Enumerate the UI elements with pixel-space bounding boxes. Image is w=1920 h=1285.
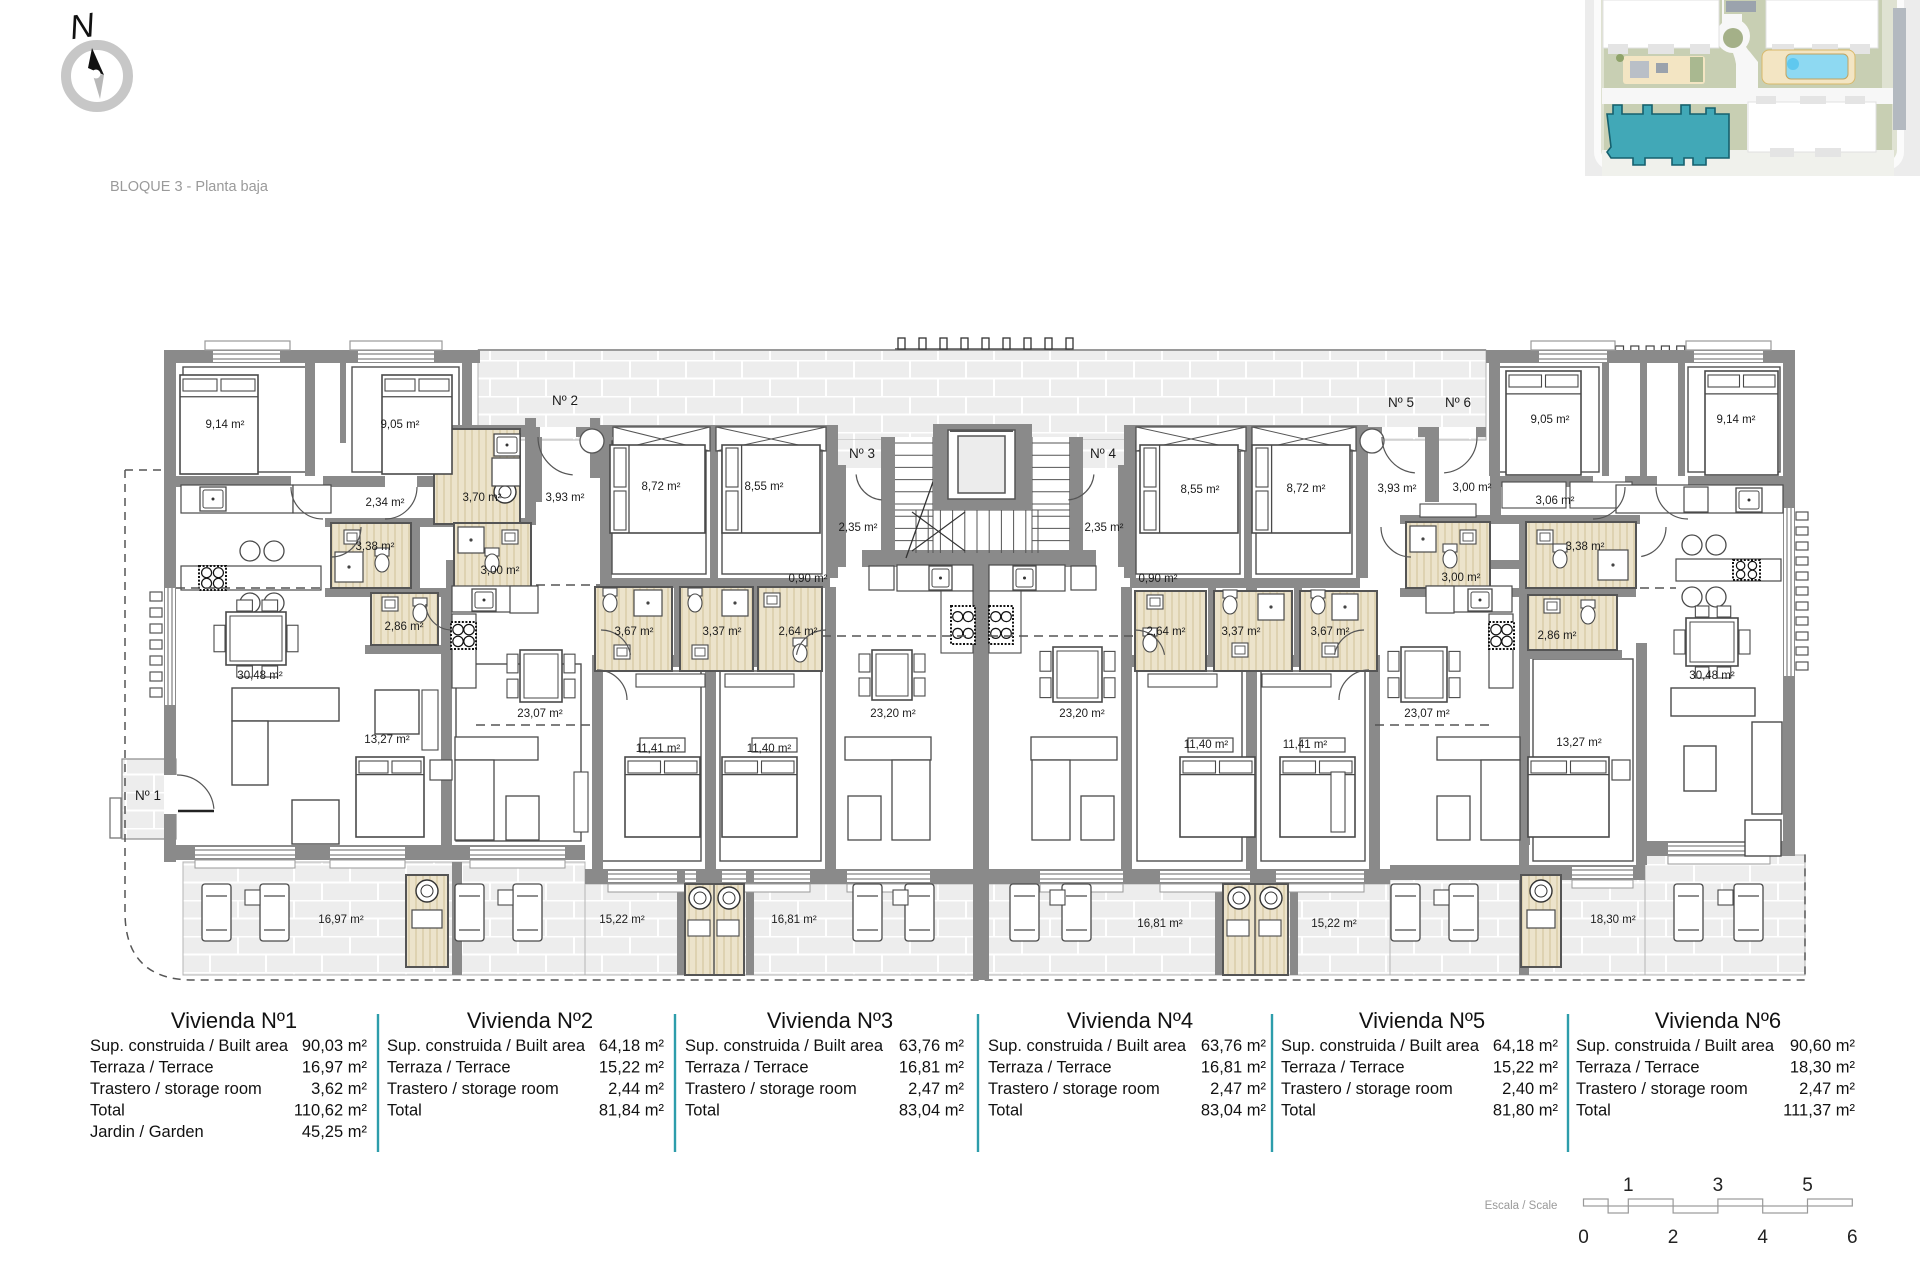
svg-text:Terraza / Terrace: Terraza / Terrace (387, 1059, 511, 1077)
svg-text:Sup. construida / Built area: Sup. construida / Built area (90, 1037, 289, 1055)
svg-text:9,05 m²: 9,05 m² (381, 419, 420, 431)
svg-text:0: 0 (1578, 1227, 1589, 1248)
svg-text:15,22 m²: 15,22 m² (599, 914, 645, 926)
svg-text:3,00 m²: 3,00 m² (1453, 482, 1492, 494)
svg-text:Nº 1: Nº 1 (135, 788, 161, 803)
svg-text:3,06 m²: 3,06 m² (1536, 495, 1575, 507)
svg-text:2,64 m²: 2,64 m² (779, 626, 818, 638)
svg-text:Nº 3: Nº 3 (849, 446, 875, 461)
svg-text:Trastero / storage room: Trastero / storage room (685, 1080, 857, 1098)
svg-text:4: 4 (1757, 1227, 1768, 1248)
svg-text:11,41 m²: 11,41 m² (1283, 739, 1328, 751)
svg-text:5: 5 (1802, 1175, 1813, 1196)
svg-text:81,84 m²: 81,84 m² (599, 1102, 665, 1120)
svg-text:111,37 m²: 111,37 m² (1783, 1102, 1855, 1120)
svg-text:Sup. construida / Built area: Sup. construida / Built area (988, 1037, 1187, 1055)
svg-text:3,38 m²: 3,38 m² (1566, 541, 1605, 553)
svg-text:90,60 m²: 90,60 m² (1790, 1037, 1856, 1055)
svg-text:6: 6 (1847, 1227, 1858, 1248)
svg-text:3,00 m²: 3,00 m² (481, 565, 520, 577)
svg-text:Total: Total (1576, 1102, 1611, 1120)
svg-text:Vivienda Nº1: Vivienda Nº1 (171, 1008, 297, 1033)
svg-text:2,40 m²: 2,40 m² (1502, 1080, 1558, 1098)
svg-text:3,37 m²: 3,37 m² (1222, 626, 1261, 638)
svg-text:2,86 m²: 2,86 m² (385, 621, 424, 633)
svg-text:16,97 m²: 16,97 m² (302, 1059, 368, 1077)
svg-text:2,35 m²: 2,35 m² (839, 522, 878, 534)
svg-text:3,62 m²: 3,62 m² (311, 1080, 367, 1098)
svg-text:Terraza / Terrace: Terraza / Terrace (685, 1059, 809, 1077)
svg-text:83,04 m²: 83,04 m² (899, 1102, 965, 1120)
svg-text:15,22 m²: 15,22 m² (1493, 1059, 1559, 1077)
svg-text:N: N (67, 6, 97, 47)
svg-text:8,55 m²: 8,55 m² (745, 481, 784, 493)
svg-text:16,97 m²: 16,97 m² (318, 914, 364, 926)
svg-text:64,18 m²: 64,18 m² (1493, 1037, 1559, 1055)
svg-text:2,35 m²: 2,35 m² (1085, 522, 1124, 534)
svg-text:2,47 m²: 2,47 m² (1799, 1080, 1855, 1098)
svg-text:Terraza / Terrace: Terraza / Terrace (988, 1059, 1112, 1077)
svg-text:16,81 m²: 16,81 m² (1201, 1059, 1267, 1077)
svg-text:BLOQUE 3 - Planta baja: BLOQUE 3 - Planta baja (110, 179, 269, 195)
svg-text:0,90 m²: 0,90 m² (789, 573, 828, 585)
svg-text:63,76 m²: 63,76 m² (899, 1037, 965, 1055)
svg-text:Total: Total (1281, 1102, 1316, 1120)
svg-text:Total: Total (988, 1102, 1023, 1120)
svg-text:16,81 m²: 16,81 m² (1137, 918, 1183, 930)
svg-text:2,64 m²: 2,64 m² (1147, 626, 1186, 638)
svg-text:81,80 m²: 81,80 m² (1493, 1102, 1559, 1120)
svg-text:3,93 m²: 3,93 m² (546, 492, 585, 504)
svg-text:15,22 m²: 15,22 m² (1311, 918, 1357, 930)
svg-text:3,70 m²: 3,70 m² (463, 492, 502, 504)
svg-text:3,38 m²: 3,38 m² (356, 541, 395, 553)
svg-text:90,03 m²: 90,03 m² (302, 1037, 368, 1055)
svg-text:Trastero / storage room: Trastero / storage room (1281, 1080, 1453, 1098)
svg-text:64,18 m²: 64,18 m² (599, 1037, 665, 1055)
svg-text:0,90 m²: 0,90 m² (1139, 573, 1178, 585)
svg-text:18,30 m²: 18,30 m² (1590, 914, 1636, 926)
svg-text:13,27 m²: 13,27 m² (1556, 737, 1602, 749)
svg-text:16,81 m²: 16,81 m² (899, 1059, 965, 1077)
svg-text:Nº 5: Nº 5 (1388, 395, 1414, 410)
svg-text:Sup. construida / Built area: Sup. construida / Built area (387, 1037, 586, 1055)
svg-text:11,41 m²: 11,41 m² (636, 743, 681, 755)
svg-text:Vivienda Nº6: Vivienda Nº6 (1655, 1008, 1781, 1033)
svg-text:Total: Total (685, 1102, 720, 1120)
svg-text:23,07 m²: 23,07 m² (517, 708, 563, 720)
svg-text:Terraza / Terrace: Terraza / Terrace (90, 1059, 214, 1077)
svg-text:3,67 m²: 3,67 m² (615, 626, 654, 638)
svg-text:Trastero / storage room: Trastero / storage room (1576, 1080, 1748, 1098)
svg-text:Sup. construida / Built area: Sup. construida / Built area (1281, 1037, 1480, 1055)
svg-text:8,72 m²: 8,72 m² (1287, 483, 1326, 495)
svg-text:8,72 m²: 8,72 m² (642, 481, 681, 493)
svg-text:16,81 m²: 16,81 m² (771, 914, 817, 926)
svg-text:15,22 m²: 15,22 m² (599, 1059, 665, 1077)
svg-text:Sup. construida / Built area: Sup. construida / Built area (685, 1037, 884, 1055)
svg-text:11,40 m²: 11,40 m² (747, 743, 792, 755)
svg-text:Terraza / Terrace: Terraza / Terrace (1281, 1059, 1405, 1077)
svg-text:30,48 m²: 30,48 m² (237, 670, 283, 682)
svg-text:13,27 m²: 13,27 m² (364, 734, 410, 746)
svg-text:9,14 m²: 9,14 m² (1717, 414, 1756, 426)
svg-text:110,62 m²: 110,62 m² (294, 1102, 368, 1120)
svg-text:23,20 m²: 23,20 m² (1059, 708, 1105, 720)
svg-text:Terraza / Terrace: Terraza / Terrace (1576, 1059, 1700, 1077)
svg-text:63,76 m²: 63,76 m² (1201, 1037, 1267, 1055)
svg-text:Jardin / Garden: Jardin / Garden (90, 1123, 204, 1141)
svg-text:Sup. construida / Built area: Sup. construida / Built area (1576, 1037, 1775, 1055)
svg-text:Total: Total (90, 1102, 125, 1120)
svg-text:Vivienda Nº4: Vivienda Nº4 (1067, 1008, 1193, 1033)
svg-text:2,86 m²: 2,86 m² (1538, 630, 1577, 642)
svg-text:2,44 m²: 2,44 m² (608, 1080, 664, 1098)
svg-text:Vivienda Nº2: Vivienda Nº2 (467, 1008, 593, 1033)
svg-text:45,25 m²: 45,25 m² (302, 1123, 368, 1141)
svg-text:Nº 4: Nº 4 (1090, 446, 1116, 461)
svg-text:2,47 m²: 2,47 m² (908, 1080, 964, 1098)
svg-text:Escala / Scale: Escala / Scale (1485, 1200, 1558, 1212)
svg-text:Trastero / storage room: Trastero / storage room (387, 1080, 559, 1098)
svg-text:23,07 m²: 23,07 m² (1404, 708, 1450, 720)
svg-text:Vivienda Nº5: Vivienda Nº5 (1359, 1008, 1485, 1033)
svg-text:18,30 m²: 18,30 m² (1790, 1059, 1856, 1077)
svg-text:3,37 m²: 3,37 m² (703, 626, 742, 638)
svg-text:Nº 6: Nº 6 (1445, 395, 1471, 410)
svg-text:1: 1 (1623, 1175, 1634, 1196)
svg-text:Vivienda Nº3: Vivienda Nº3 (767, 1008, 893, 1033)
svg-text:83,04 m²: 83,04 m² (1201, 1102, 1267, 1120)
svg-text:Total: Total (387, 1102, 422, 1120)
svg-text:11,40 m²: 11,40 m² (1184, 739, 1229, 751)
svg-text:3,67 m²: 3,67 m² (1311, 626, 1350, 638)
svg-text:3,00 m²: 3,00 m² (1442, 572, 1481, 584)
svg-text:2,47 m²: 2,47 m² (1210, 1080, 1266, 1098)
svg-text:9,05 m²: 9,05 m² (1531, 414, 1570, 426)
svg-text:3: 3 (1713, 1175, 1724, 1196)
svg-text:2,34 m²: 2,34 m² (366, 497, 405, 509)
svg-text:9,14 m²: 9,14 m² (206, 419, 245, 431)
svg-text:30,48 m²: 30,48 m² (1689, 670, 1735, 682)
svg-text:8,55 m²: 8,55 m² (1181, 484, 1220, 496)
svg-text:3,93 m²: 3,93 m² (1378, 483, 1417, 495)
svg-text:2: 2 (1668, 1227, 1679, 1248)
svg-text:Trastero / storage room: Trastero / storage room (988, 1080, 1160, 1098)
svg-text:23,20 m²: 23,20 m² (870, 708, 916, 720)
svg-text:Nº 2: Nº 2 (552, 393, 578, 408)
svg-text:Trastero / storage room: Trastero / storage room (90, 1080, 262, 1098)
